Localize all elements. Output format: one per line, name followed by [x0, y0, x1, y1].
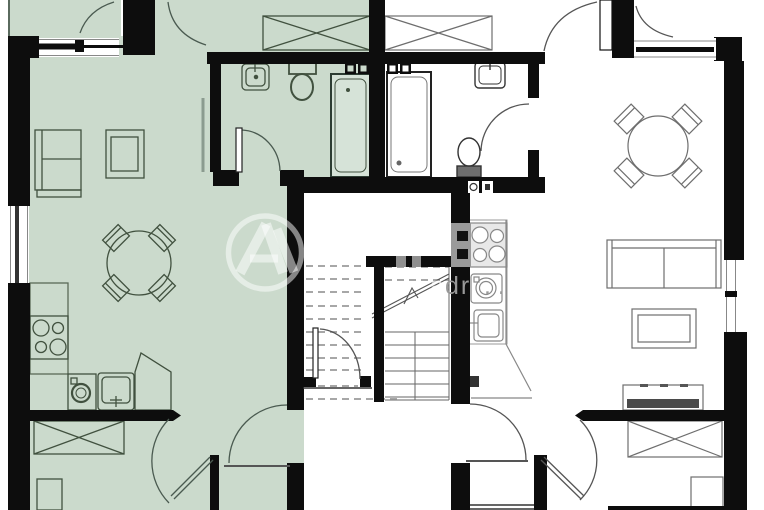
svg-text:dr: dr [445, 272, 471, 300]
svg-text:. .: . . [484, 272, 505, 300]
svg-text:a: a [430, 272, 444, 300]
